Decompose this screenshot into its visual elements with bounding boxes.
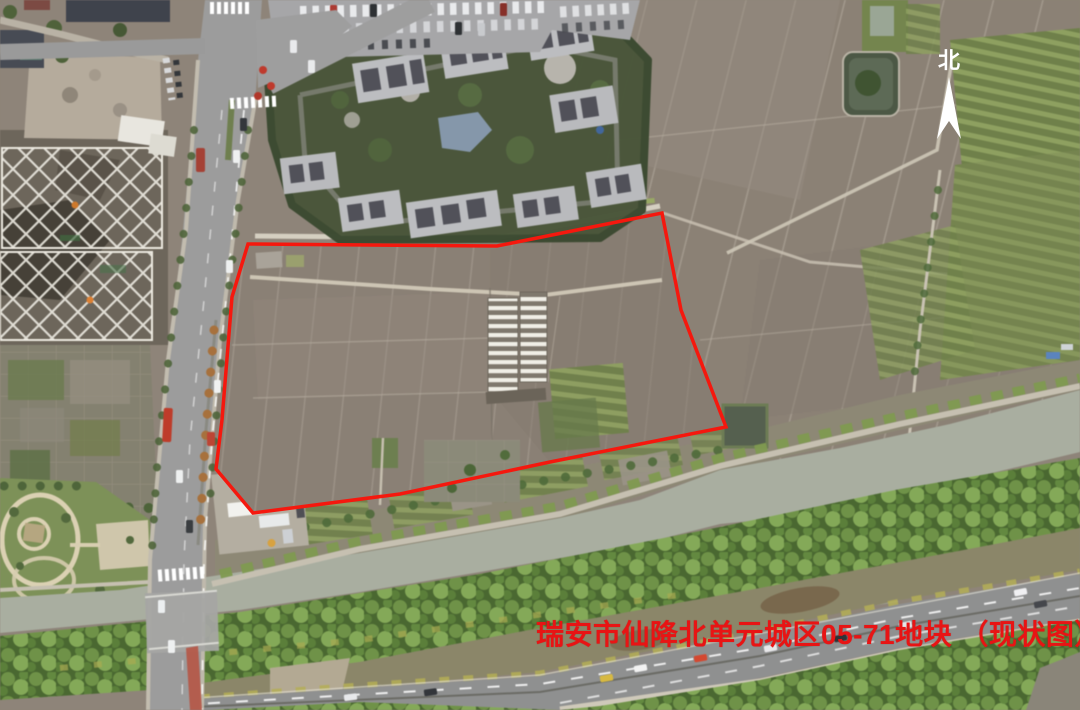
map-title: 瑞安市仙降北单元城区05-71地块 （现状图） xyxy=(536,613,1080,653)
north-indicator: 北 xyxy=(937,48,961,139)
north-arrow-icon xyxy=(937,77,961,139)
annotation-overlay: 北 xyxy=(0,0,1080,710)
aerial-map-viewport: 北 瑞安市仙降北单元城区05-71地块 （现状图） xyxy=(0,0,1080,710)
parcel-boundary-outline xyxy=(216,213,726,513)
north-label: 北 xyxy=(938,48,960,73)
